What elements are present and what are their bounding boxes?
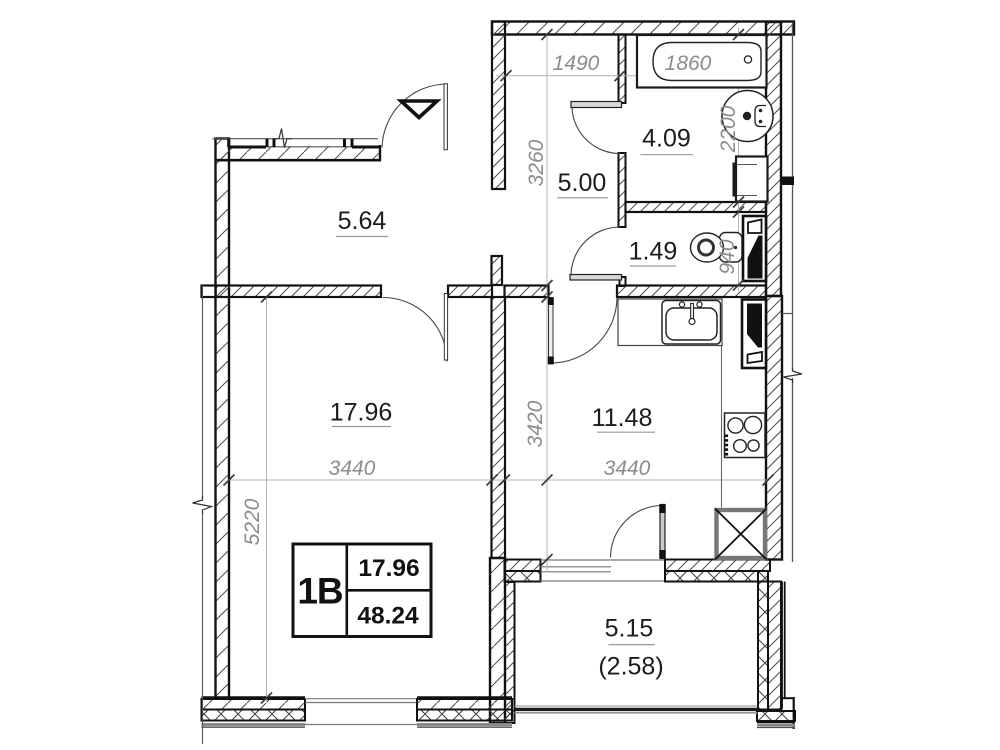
- svg-text:17.96: 17.96: [330, 399, 393, 427]
- svg-text:1.49: 1.49: [629, 238, 678, 266]
- svg-text:5.64: 5.64: [338, 207, 387, 235]
- svg-text:1490: 1490: [553, 52, 600, 75]
- svg-text:5.15: 5.15: [605, 615, 654, 643]
- svg-text:3440: 3440: [329, 457, 376, 480]
- svg-text:3420: 3420: [524, 400, 547, 447]
- svg-text:4.09: 4.09: [642, 125, 691, 153]
- svg-text:11.48: 11.48: [592, 404, 653, 432]
- svg-text:2200: 2200: [717, 105, 740, 153]
- svg-text:1B: 1B: [297, 571, 343, 612]
- svg-text:5220: 5220: [241, 498, 264, 545]
- svg-text:1860: 1860: [665, 52, 712, 75]
- svg-text:48.24: 48.24: [357, 603, 419, 630]
- svg-text:3260: 3260: [525, 139, 548, 186]
- svg-text:5.00: 5.00: [558, 169, 607, 197]
- svg-text:3440: 3440: [604, 457, 651, 480]
- svg-text:940: 940: [716, 239, 739, 274]
- svg-text:(2.58): (2.58): [598, 653, 663, 681]
- svg-text:17.96: 17.96: [358, 555, 419, 582]
